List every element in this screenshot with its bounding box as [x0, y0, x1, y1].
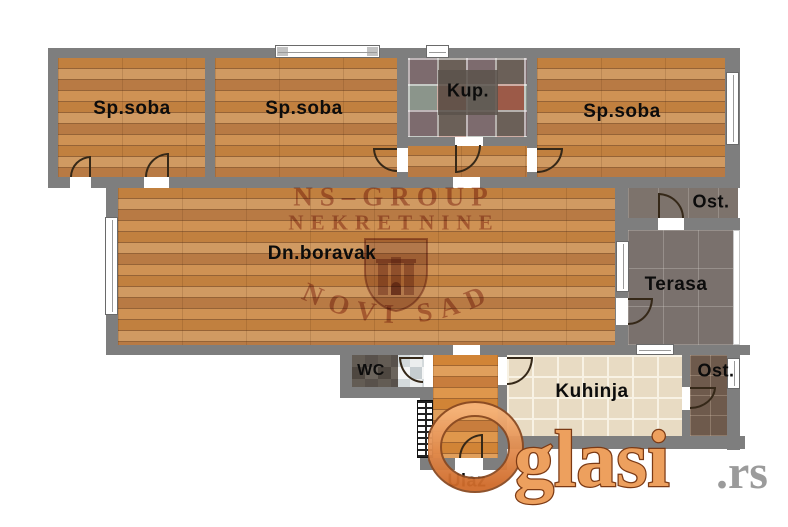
wall — [48, 48, 740, 58]
room-label-bedroom-3: Sp.soba — [583, 101, 660, 123]
watermark-line2: NEKRETNINE — [288, 211, 499, 236]
door-opening — [498, 357, 507, 385]
room-label-wc: WC — [357, 362, 385, 380]
wall — [205, 48, 215, 177]
room-label-bedroom-1: Sp.soba — [93, 98, 170, 120]
watermark-line1: NS–GROUP — [293, 182, 495, 213]
room-label-terrace: Terasa — [645, 274, 708, 296]
window — [105, 217, 118, 315]
door-opening — [424, 357, 433, 383]
window — [726, 72, 739, 145]
door-opening — [144, 177, 169, 188]
oglasi-logo: glasi .rs — [428, 400, 788, 508]
room-label-bathroom: Kup. — [447, 81, 489, 102]
room-label-storage-bottom: Ost. — [697, 361, 734, 382]
window-cap — [367, 47, 378, 56]
logo-o-ring — [434, 409, 516, 485]
window — [426, 45, 449, 58]
door-opening — [70, 177, 91, 188]
door-opening — [616, 298, 628, 325]
room-label-storage-top: Ost. — [692, 192, 729, 213]
door-opening — [397, 148, 408, 172]
door-opening — [527, 148, 537, 172]
window — [636, 344, 674, 355]
terrace-railing — [733, 230, 740, 345]
floor-plan: NS–GROUP NEKRETNINE NOVI SAD Sp.soba Sp.… — [0, 0, 788, 527]
room-label-living-room: Dn.boravak — [268, 243, 376, 265]
wall — [48, 48, 58, 188]
room-label-bedroom-2: Sp.soba — [265, 98, 342, 120]
logo-tld-text: .rs — [716, 446, 768, 499]
door-opening — [658, 218, 684, 230]
window — [616, 241, 629, 292]
window — [275, 45, 380, 58]
window-cap — [277, 47, 288, 56]
svg-text:NOVI SAD: NOVI SAD — [298, 276, 498, 329]
watermark-line3-curved: NOVI SAD — [278, 268, 518, 353]
logo-name-text: glasi — [514, 416, 670, 504]
